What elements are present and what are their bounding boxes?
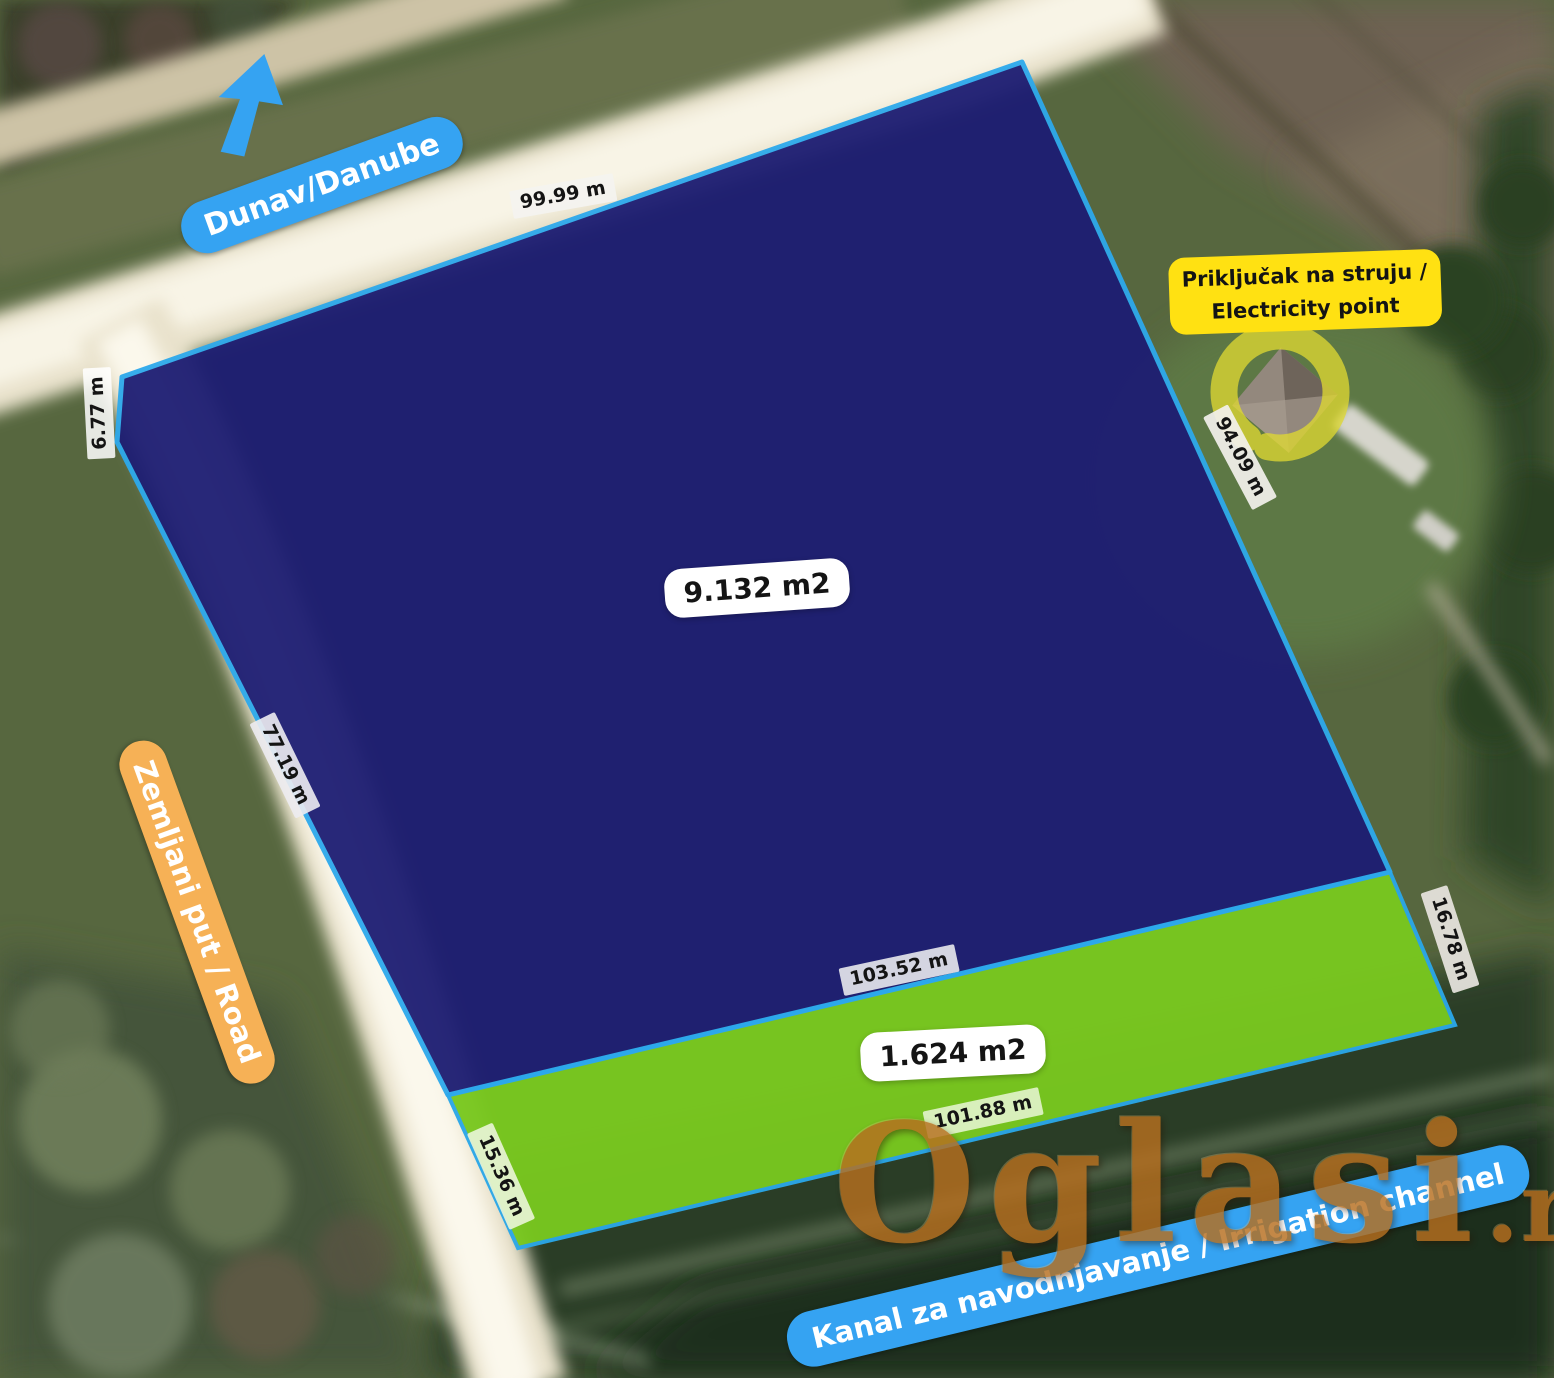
electricity-point-label: Priključak na struju / Electricity point	[1168, 249, 1442, 336]
land-plot-aerial-map: Dunav/Danube 99.99 m 6.77 m Priključak n…	[0, 0, 1554, 1378]
site-watermark: Oglasi.rs	[833, 1102, 1554, 1266]
site-watermark-name: Oglasi	[833, 1087, 1486, 1280]
site-watermark-tld: .rs	[1486, 1151, 1554, 1264]
green-parcel-area-label: 1.624 m2	[859, 1024, 1046, 1083]
dimension-bevel-side: 6.77 m	[83, 367, 116, 460]
